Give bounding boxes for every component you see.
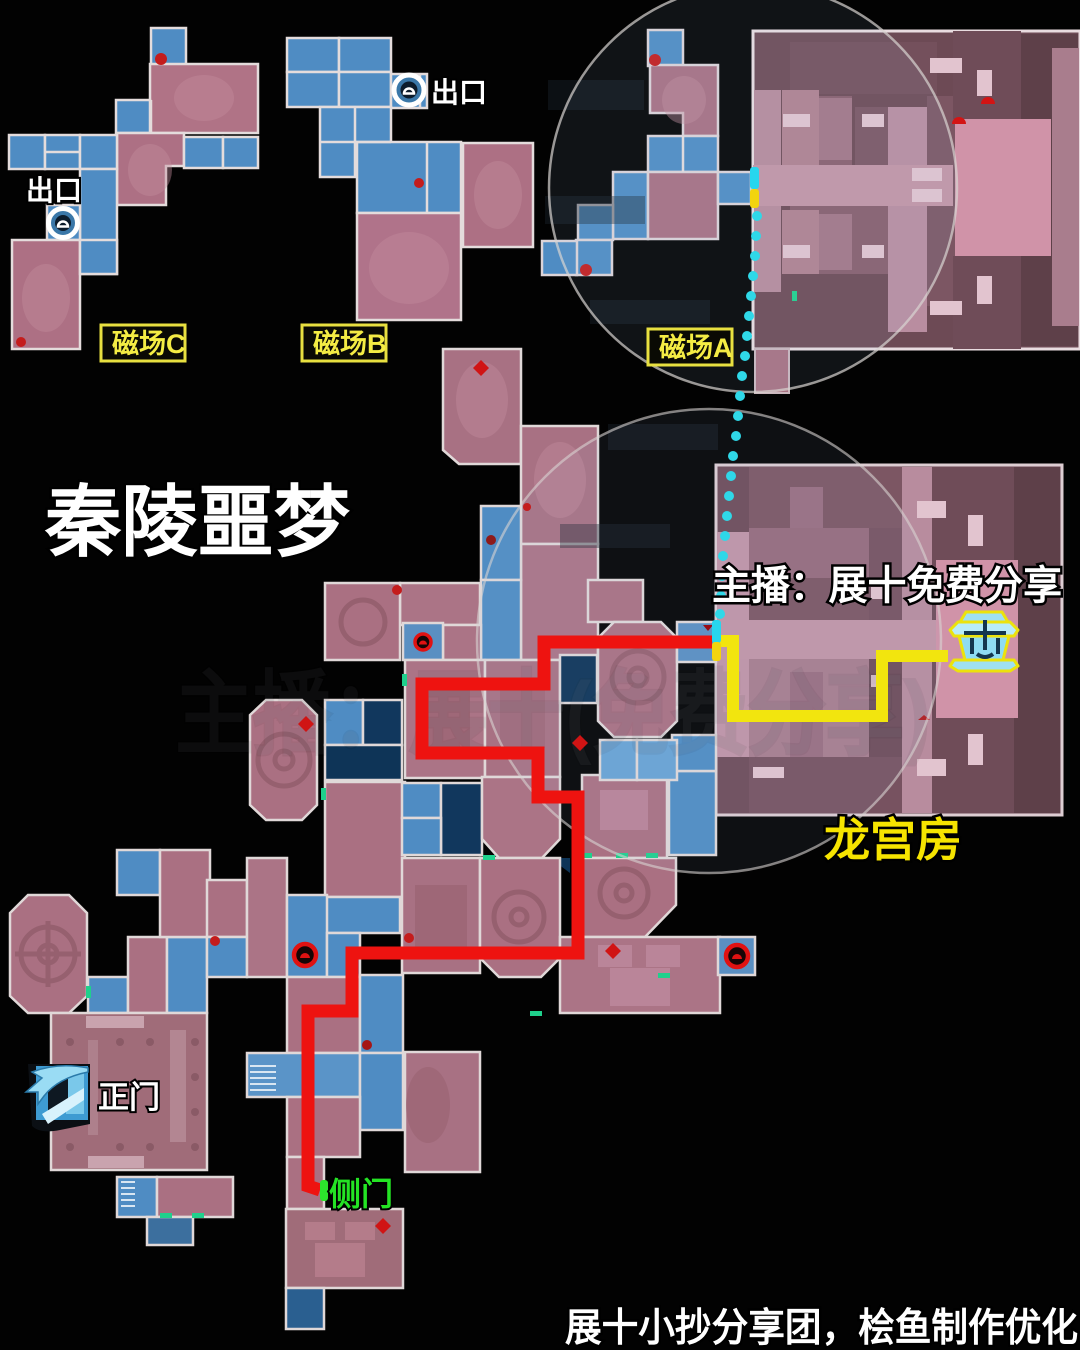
- svg-text:展十小抄分享团，桧鱼制作优化: 展十小抄分享团，桧鱼制作优化: [565, 1307, 1078, 1350]
- svg-text:侧门: 侧门: [329, 1176, 393, 1212]
- svg-text:出口: 出口: [431, 77, 487, 108]
- svg-text:磁场B: 磁场B: [313, 329, 387, 359]
- svg-text:出口: 出口: [26, 175, 82, 206]
- svg-text:主播：展十免费分享: 主播：展十免费分享: [712, 564, 1062, 608]
- svg-text:龙宫房: 龙宫房: [824, 814, 962, 866]
- svg-text:正门: 正门: [98, 1080, 160, 1115]
- svg-text:磁场A: 磁场A: [659, 333, 733, 363]
- svg-text:磁场C: 磁场C: [112, 329, 186, 359]
- svg-text:秦陵噩梦: 秦陵噩梦: [44, 478, 350, 566]
